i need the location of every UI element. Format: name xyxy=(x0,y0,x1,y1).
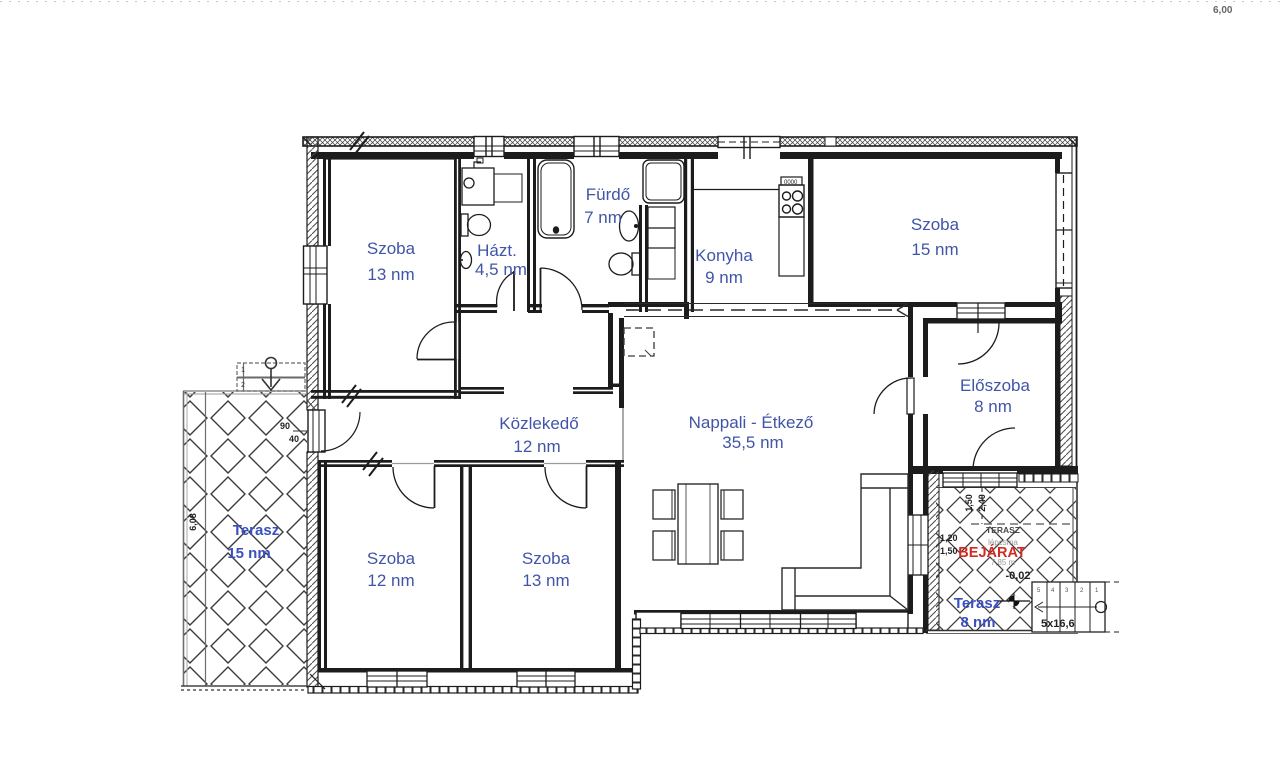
svg-text:15 nm: 15 nm xyxy=(227,545,270,562)
svg-text:Szoba: Szoba xyxy=(367,549,416,568)
svg-text:Szoba: Szoba xyxy=(911,215,960,234)
svg-text:13 nm: 13 nm xyxy=(367,265,414,284)
svg-text:Házt.: Házt. xyxy=(477,241,517,260)
svg-text:BEJÁRAT: BEJÁRAT xyxy=(958,544,1026,561)
svg-text:1,20: 1,20 xyxy=(940,533,958,543)
svg-text:-0,02: -0,02 xyxy=(1005,570,1030,582)
svg-text:0000: 0000 xyxy=(784,180,798,186)
svg-text:12 nm: 12 nm xyxy=(367,571,414,590)
svg-text:12 nm: 12 nm xyxy=(513,437,560,456)
svg-text:Szoba: Szoba xyxy=(367,239,416,258)
svg-text:Előszoba: Előszoba xyxy=(960,376,1030,395)
svg-text:Terasz: Terasz xyxy=(233,522,279,539)
svg-text:6,00: 6,00 xyxy=(1213,5,1233,16)
svg-text:4,5 nm: 4,5 nm xyxy=(475,260,527,279)
svg-text:9 nm: 9 nm xyxy=(705,268,743,287)
svg-text:Konyha: Konyha xyxy=(695,246,753,265)
svg-text:8 nm: 8 nm xyxy=(960,614,995,631)
svg-text:Fürdő: Fürdő xyxy=(586,185,630,204)
svg-text:Közlekedő: Közlekedő xyxy=(499,414,578,433)
svg-text:2: 2 xyxy=(241,382,245,389)
svg-text:Nappali - Étkező: Nappali - Étkező xyxy=(689,413,814,432)
svg-text:90: 90 xyxy=(280,421,290,431)
svg-text:1,50: 1,50 xyxy=(940,546,958,556)
svg-text:13 nm: 13 nm xyxy=(522,571,569,590)
svg-text:6,08: 6,08 xyxy=(188,513,198,531)
svg-text:8 nm: 8 nm xyxy=(974,397,1012,416)
svg-text:5x16,6: 5x16,6 xyxy=(1041,618,1075,630)
svg-text:Terasz: Terasz xyxy=(954,595,1000,612)
svg-text:2,40: 2,40 xyxy=(977,494,987,512)
svg-text:35,5 nm: 35,5 nm xyxy=(722,433,783,452)
svg-text:15 nm: 15 nm xyxy=(911,240,958,259)
svg-text:7 nm: 7 nm xyxy=(584,208,622,227)
svg-text:TERASZ: TERASZ xyxy=(986,525,1020,535)
svg-text:1: 1 xyxy=(241,367,245,374)
svg-text:1,50: 1,50 xyxy=(964,494,974,512)
svg-text:Szoba: Szoba xyxy=(522,549,571,568)
svg-text:40: 40 xyxy=(289,434,299,444)
